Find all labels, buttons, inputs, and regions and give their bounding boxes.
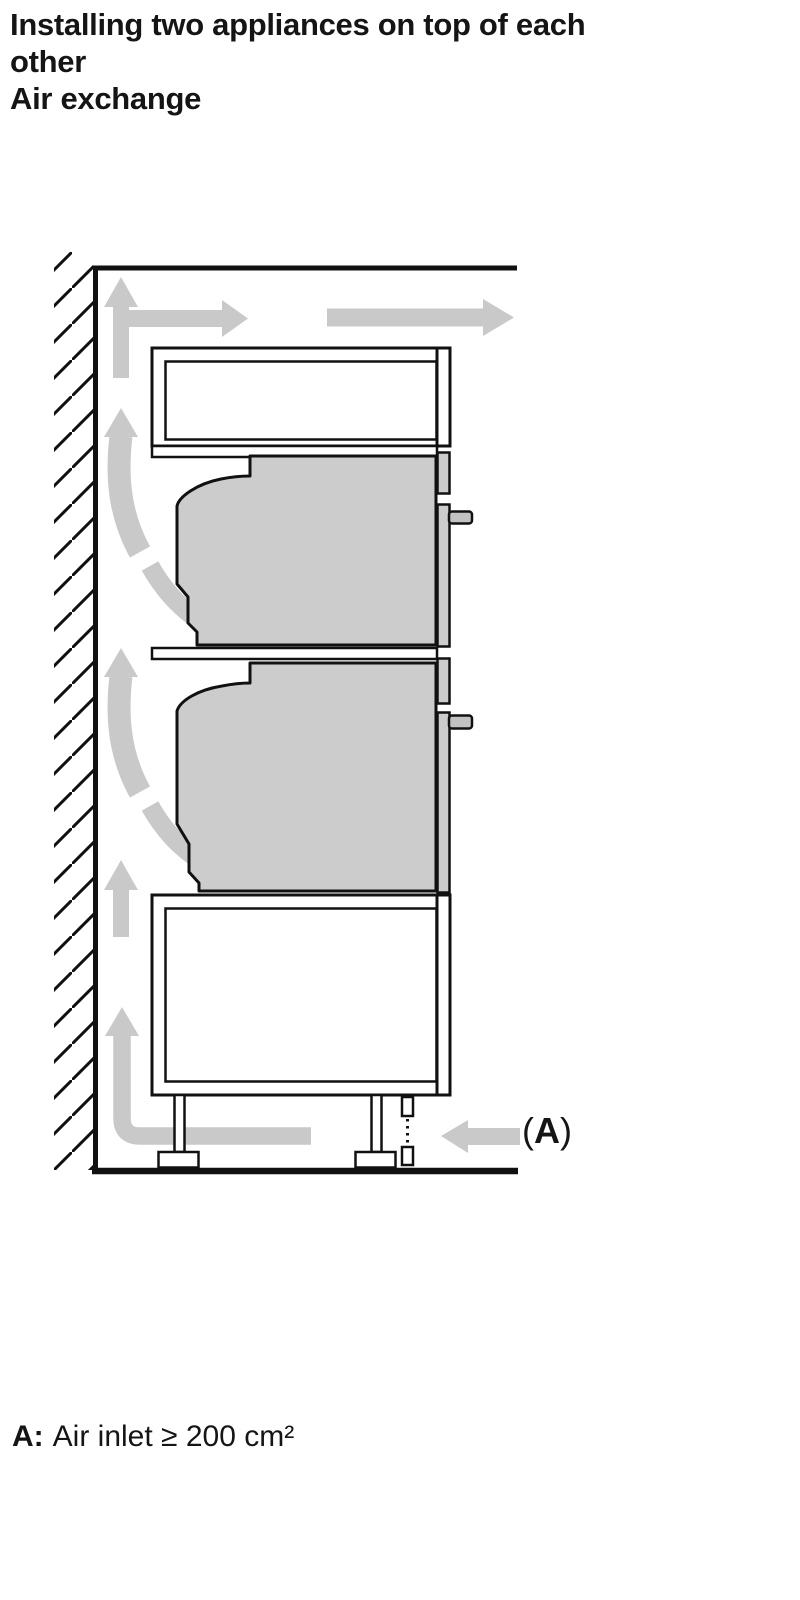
air-inlet-arrow — [441, 1120, 520, 1153]
airflow-right-arrow-long — [327, 299, 514, 336]
upper-oven — [177, 453, 472, 647]
middle-shelf — [152, 648, 437, 659]
manual-page: Installing two appliances on top of each… — [0, 0, 800, 1600]
air-inlet-label-close: ) — [560, 1110, 572, 1151]
lower-oven-door — [438, 713, 450, 893]
air-inlet-label: (A) — [522, 1110, 572, 1152]
cabinet-foot-right — [356, 1095, 396, 1168]
plinth-air-gap — [402, 1097, 413, 1165]
wall-hatching — [54, 252, 93, 1170]
legend-note: A:Air inlet ≥ 200 cm² — [12, 1420, 294, 1454]
upper-oven-door — [438, 505, 450, 647]
legend-note-text: Air inlet ≥ 200 cm² — [53, 1420, 295, 1453]
upper-cabinet-compartment — [152, 348, 450, 457]
airflow-right-arrow-short — [126, 300, 248, 337]
airflow-up-arrow-lower — [104, 860, 138, 937]
air-inlet-label-open: ( — [522, 1110, 534, 1151]
base-cabinet-compartment — [152, 895, 450, 1095]
legend-note-key: A: — [12, 1420, 44, 1453]
airflow-up-arrow-top — [104, 277, 138, 378]
upper-oven-handle — [449, 512, 472, 524]
lower-oven-handle — [449, 716, 472, 729]
installation-diagram — [0, 0, 800, 1250]
upper-oven-control-panel — [438, 453, 450, 494]
air-inlet-label-letter: A — [534, 1110, 560, 1151]
lower-oven — [177, 659, 472, 893]
lower-oven-control-panel — [438, 659, 450, 704]
